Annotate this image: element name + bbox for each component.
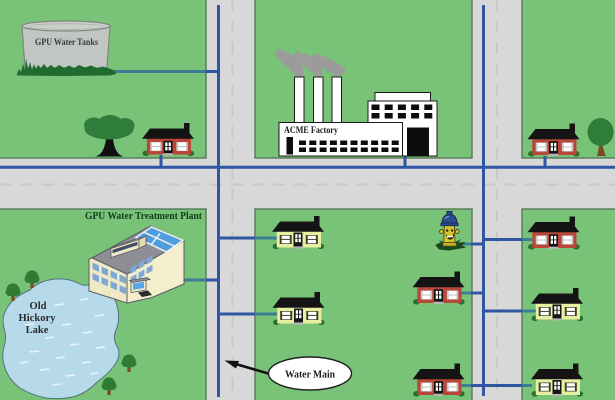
svg-text:GPU Water Treatment Plant: GPU Water Treatment Plant	[85, 211, 203, 222]
svg-text:Old: Old	[30, 301, 47, 312]
svg-text:Water Main: Water Main	[285, 370, 335, 381]
svg-text:ACME Factory: ACME Factory	[284, 126, 338, 136]
svg-text:Hickory: Hickory	[19, 313, 57, 324]
svg-text:Lake: Lake	[26, 325, 49, 336]
svg-text:GPU Water Tanks: GPU Water Tanks	[35, 37, 98, 47]
